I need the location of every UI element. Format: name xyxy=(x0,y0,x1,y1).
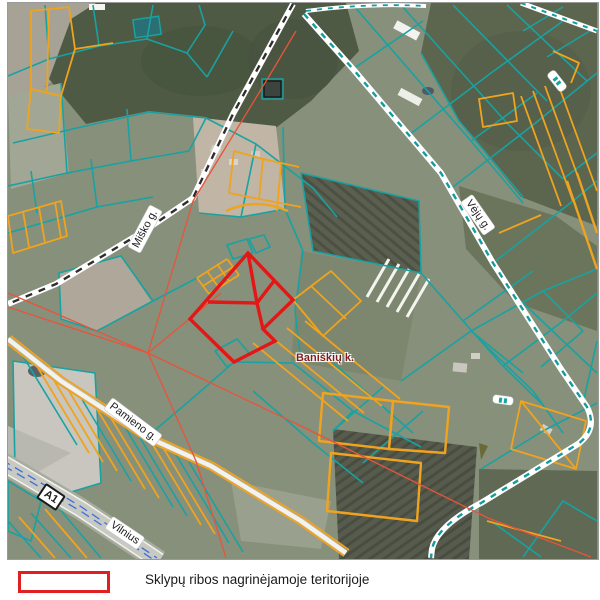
map-canvas: Miško g. Vėjų g. Pamieno g. A1 Vilnius B… xyxy=(7,2,599,560)
terrain-patches xyxy=(8,3,598,559)
legend-label: Sklypų ribos nagrinėjamoje teritorijoje xyxy=(145,572,369,587)
legend-swatch-subject-parcel xyxy=(18,571,110,593)
aerial-map xyxy=(8,3,598,559)
map-document: Miško g. Vėjų g. Pamieno g. A1 Vilnius B… xyxy=(0,0,600,600)
place-label-village: Baniškių k. xyxy=(293,351,357,365)
legend: Sklypų ribos nagrinėjamoje teritorijoje xyxy=(0,565,600,600)
homestead-marker xyxy=(264,81,281,97)
